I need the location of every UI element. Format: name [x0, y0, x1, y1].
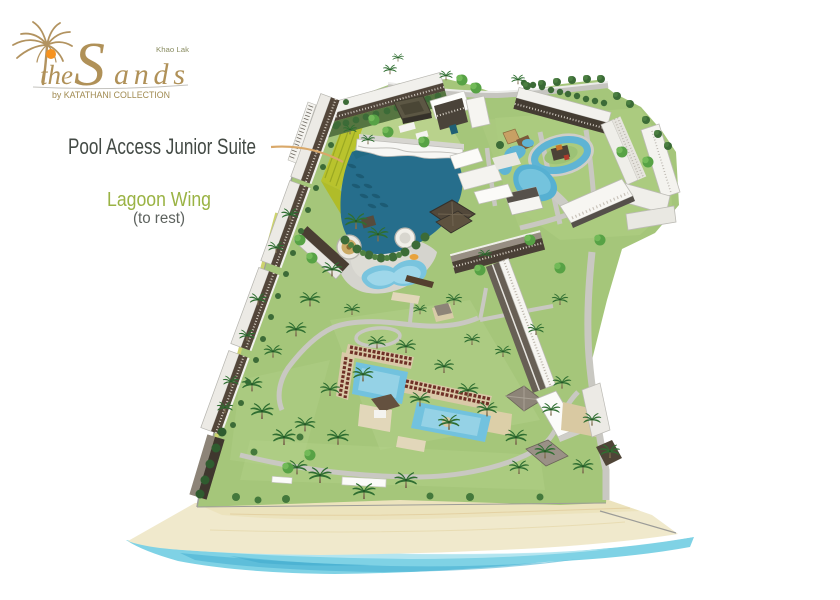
- svg-text:the: the: [40, 60, 73, 90]
- svg-text:by KATATHANI COLLECTION: by KATATHANI COLLECTION: [52, 90, 170, 100]
- svg-text:Khao Lak: Khao Lak: [156, 45, 189, 54]
- svg-text:(to rest): (to rest): [133, 210, 185, 227]
- svg-text:Lagoon Wing: Lagoon Wing: [107, 189, 211, 211]
- svg-text:Pool Access Junior Suite: Pool Access Junior Suite: [68, 134, 256, 159]
- svg-text:S: S: [74, 31, 105, 99]
